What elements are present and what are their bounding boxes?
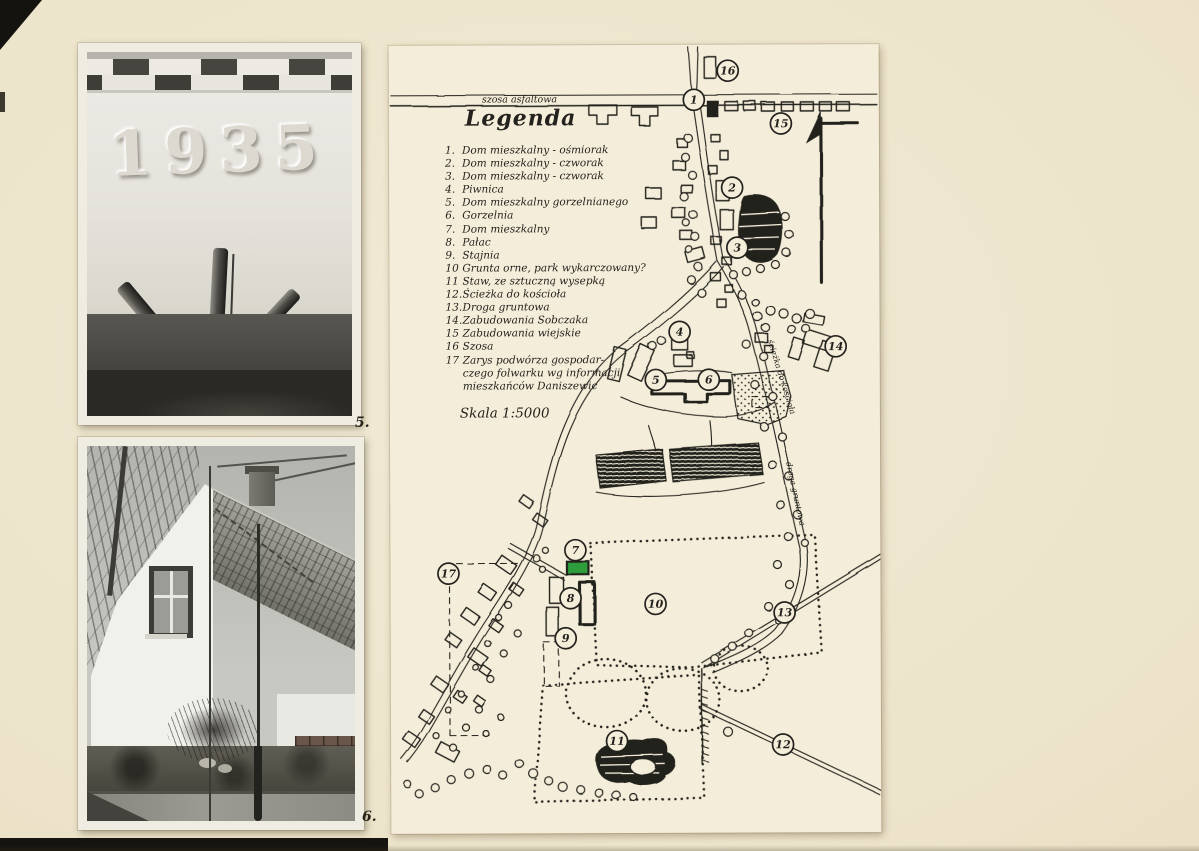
window-sill bbox=[145, 634, 187, 639]
legend-title: Legenda bbox=[465, 105, 689, 132]
map-scale: Skala 1:5000 bbox=[460, 405, 690, 422]
photo-print-wall-1935: 1935 bbox=[78, 43, 361, 425]
plowed-field-strips bbox=[596, 443, 763, 489]
lightning-rod-thin bbox=[209, 466, 211, 821]
legend-item: 1.Dom mieszkalny - ośmiorak bbox=[445, 144, 689, 158]
photo-caption-number-6: 6. bbox=[362, 809, 377, 825]
scan-bottom-fade bbox=[0, 845, 1199, 851]
svg-text:9: 9 bbox=[562, 632, 570, 645]
date-inscription-1935: 1935 bbox=[87, 109, 352, 191]
svg-text:7: 7 bbox=[572, 544, 580, 557]
legend-item: 11Staw, ze sztuczną wysepką bbox=[445, 275, 689, 289]
svg-text:12: 12 bbox=[775, 738, 791, 751]
svg-text:15: 15 bbox=[773, 117, 788, 130]
photo-house-gable bbox=[87, 446, 355, 821]
shrub bbox=[167, 698, 259, 762]
legend-item: 14.Zabudowania Sobczaka bbox=[446, 314, 690, 328]
legend-item: 10Grunta orne, park wykarczowany? bbox=[445, 262, 689, 276]
svg-text:1: 1 bbox=[690, 94, 698, 107]
stone-2 bbox=[218, 764, 232, 773]
legend-item: 3.Dom mieszkalny - czworak bbox=[445, 170, 689, 184]
legend-item: 2.Dom mieszkalny - czworak bbox=[445, 157, 689, 171]
dark-lower-band bbox=[87, 370, 352, 416]
photo-caption-number-5: 5. bbox=[355, 415, 370, 431]
legend-item: 17Zarys podwórza gospodar- czego folwark… bbox=[446, 353, 690, 393]
highlighted-building bbox=[566, 561, 588, 574]
legend-item: 13.Droga gruntowa bbox=[446, 301, 690, 315]
legend-item: 15Zabudowania wiejskie bbox=[446, 327, 690, 341]
chimney bbox=[249, 472, 275, 506]
park-fence bbox=[702, 669, 708, 763]
cornice-base bbox=[87, 52, 352, 59]
lightning-rod-base bbox=[254, 746, 262, 821]
legend-item: 16Szosa bbox=[446, 340, 690, 354]
dark-wall-band bbox=[87, 314, 352, 370]
legend-item: 4.Piwnica bbox=[445, 183, 689, 197]
svg-text:11: 11 bbox=[609, 735, 624, 748]
svg-text:3: 3 bbox=[733, 241, 741, 254]
legend-list: 1.Dom mieszkalny - ośmiorak2.Dom mieszka… bbox=[445, 144, 690, 394]
svg-text:10: 10 bbox=[648, 598, 664, 611]
legend-item: 9.Stajnia bbox=[445, 249, 689, 263]
svg-text:16: 16 bbox=[720, 64, 736, 77]
legend-item: 12.Ścieżka do kościoła bbox=[445, 288, 689, 302]
svg-text:8: 8 bbox=[567, 592, 575, 605]
legend-item: 6.Gorzelnia bbox=[445, 209, 689, 223]
stone bbox=[199, 758, 216, 768]
svg-text:14: 14 bbox=[828, 340, 843, 353]
svg-text:2: 2 bbox=[727, 181, 736, 194]
hand-drawn-site-map-sheet: szosa asfaltowa ścieżka do kościoła drog… bbox=[389, 44, 882, 834]
svg-text:6: 6 bbox=[705, 374, 713, 387]
scan-edge-mark bbox=[0, 92, 5, 112]
cornice-dentils-row2 bbox=[87, 75, 352, 90]
legend-item: 7.Dom mieszkalny bbox=[445, 222, 689, 236]
album-page-scan: { "page": { "photo_labels": { "top_photo… bbox=[0, 0, 1199, 851]
legend-item: 5.Dom mieszkalny gorzelnianego bbox=[445, 196, 689, 210]
cornice-dentils-row1 bbox=[87, 59, 352, 75]
village-road bbox=[688, 47, 724, 261]
photo-wall-1935: 1935 bbox=[87, 52, 352, 416]
north-arrow bbox=[807, 112, 859, 282]
map-legend: Legenda 1.Dom mieszkalny - ośmiorak2.Dom… bbox=[445, 105, 690, 422]
scan-corner-shadow bbox=[0, 0, 42, 50]
photo-print-house bbox=[78, 437, 364, 830]
svg-text:13: 13 bbox=[777, 606, 793, 619]
svg-text:17: 17 bbox=[441, 567, 457, 580]
legend-item: 8.Pałac bbox=[445, 235, 689, 249]
window bbox=[149, 566, 193, 638]
highway-label: szosa asfaltowa bbox=[482, 94, 558, 105]
